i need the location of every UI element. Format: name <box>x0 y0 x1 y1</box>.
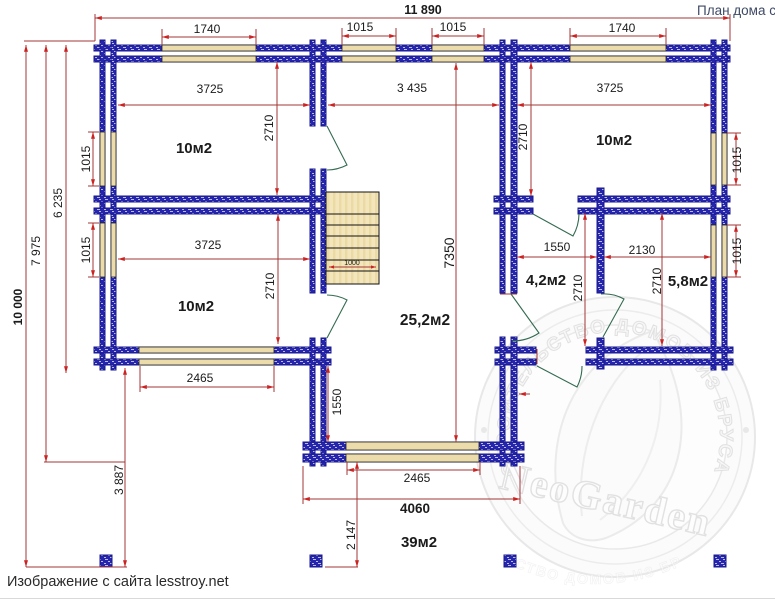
svg-text:1000: 1000 <box>344 260 360 267</box>
svg-text:2 147: 2 147 <box>344 520 358 550</box>
svg-text:3 887: 3 887 <box>112 465 126 495</box>
svg-text:5,8м2: 5,8м2 <box>668 273 708 290</box>
svg-text:10м2: 10м2 <box>596 132 632 149</box>
svg-text:7 975: 7 975 <box>29 236 43 266</box>
svg-text:3 435: 3 435 <box>397 81 427 95</box>
svg-text:10 000: 10 000 <box>11 288 25 325</box>
svg-text:2130: 2130 <box>629 243 656 257</box>
svg-text:3725: 3725 <box>195 238 222 252</box>
svg-text:2710: 2710 <box>650 267 664 294</box>
svg-text:1015: 1015 <box>440 20 467 34</box>
svg-text:10м2: 10м2 <box>176 140 212 157</box>
svg-text:7350: 7350 <box>441 237 457 268</box>
svg-text:Изображение с сайта lesstroy.n: Изображение с сайта lesstroy.net <box>7 574 229 590</box>
svg-text:11 890: 11 890 <box>404 3 442 17</box>
svg-text:2710: 2710 <box>571 274 585 301</box>
svg-text:3725: 3725 <box>197 82 224 96</box>
svg-text:1015: 1015 <box>79 145 93 172</box>
svg-text:2465: 2465 <box>404 471 431 485</box>
svg-text:2465: 2465 <box>187 371 214 385</box>
svg-text:1740: 1740 <box>194 22 221 36</box>
svg-text:4060: 4060 <box>400 501 430 516</box>
svg-text:25,2м2: 25,2м2 <box>400 312 450 329</box>
svg-text:6 235: 6 235 <box>51 188 65 218</box>
svg-text:1015: 1015 <box>730 146 744 173</box>
svg-text:2710: 2710 <box>516 123 530 150</box>
svg-text:1015: 1015 <box>730 237 744 264</box>
svg-text:39м2: 39м2 <box>401 534 437 551</box>
svg-text:План дома с: План дома с <box>697 3 775 18</box>
svg-text:10м2: 10м2 <box>178 298 214 315</box>
svg-text:1550: 1550 <box>330 388 344 415</box>
svg-text:2710: 2710 <box>263 272 277 299</box>
svg-text:3725: 3725 <box>597 81 624 95</box>
svg-text:1740: 1740 <box>609 21 636 35</box>
svg-text:4,2м2: 4,2м2 <box>526 272 566 289</box>
svg-text:2710: 2710 <box>262 114 276 141</box>
svg-text:1015: 1015 <box>79 236 93 263</box>
svg-text:1015: 1015 <box>347 20 374 34</box>
svg-text:1550: 1550 <box>544 240 571 254</box>
